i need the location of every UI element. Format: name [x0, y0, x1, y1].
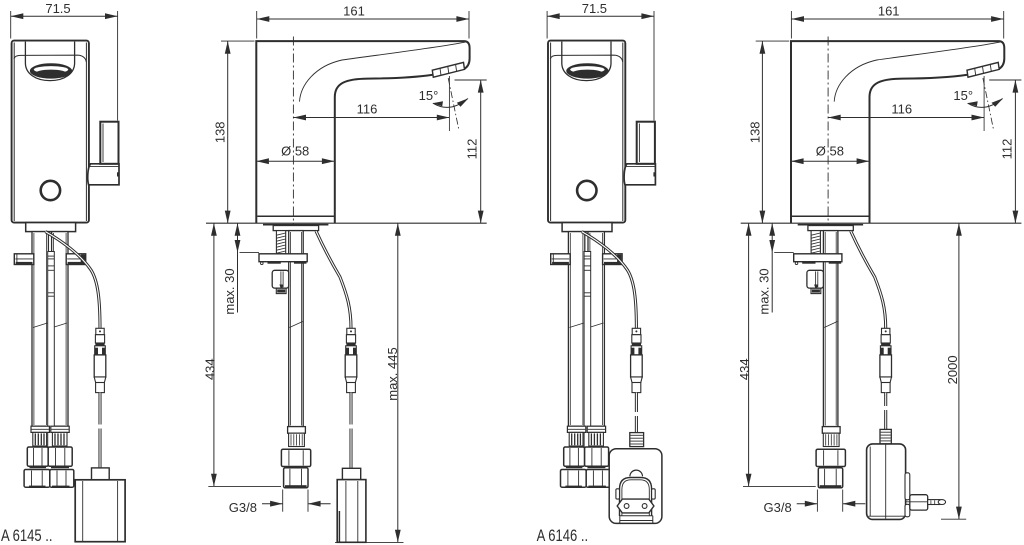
svg-text:2000: 2000 [945, 355, 960, 384]
svg-text:116: 116 [891, 102, 912, 117]
svg-text:434: 434 [202, 358, 217, 380]
svg-text:max. 30: max. 30 [757, 268, 772, 314]
svg-text:G3/8: G3/8 [764, 500, 792, 515]
svg-text:max. 30: max. 30 [222, 268, 237, 314]
svg-text:138: 138 [213, 121, 228, 143]
svg-text:G3/8: G3/8 [229, 500, 257, 515]
svg-text:71.5: 71.5 [582, 1, 607, 16]
svg-text:161: 161 [878, 4, 900, 19]
svg-text:112: 112 [999, 139, 1014, 160]
svg-text:Ø 58: Ø 58 [816, 144, 844, 159]
svg-text:434: 434 [737, 358, 752, 380]
svg-text:15°: 15° [953, 88, 973, 103]
svg-text:A 6145 ..: A 6145 .. [1, 526, 53, 545]
svg-text:max. 445: max. 445 [385, 347, 400, 400]
svg-text:Ø 58: Ø 58 [281, 144, 309, 159]
svg-text:A 6146 ..: A 6146 .. [537, 526, 589, 545]
svg-text:161: 161 [343, 4, 365, 19]
svg-text:71.5: 71.5 [45, 1, 70, 16]
svg-text:15°: 15° [419, 88, 439, 103]
svg-text:138: 138 [747, 121, 762, 143]
svg-text:116: 116 [357, 102, 378, 117]
svg-text:112: 112 [465, 139, 480, 160]
